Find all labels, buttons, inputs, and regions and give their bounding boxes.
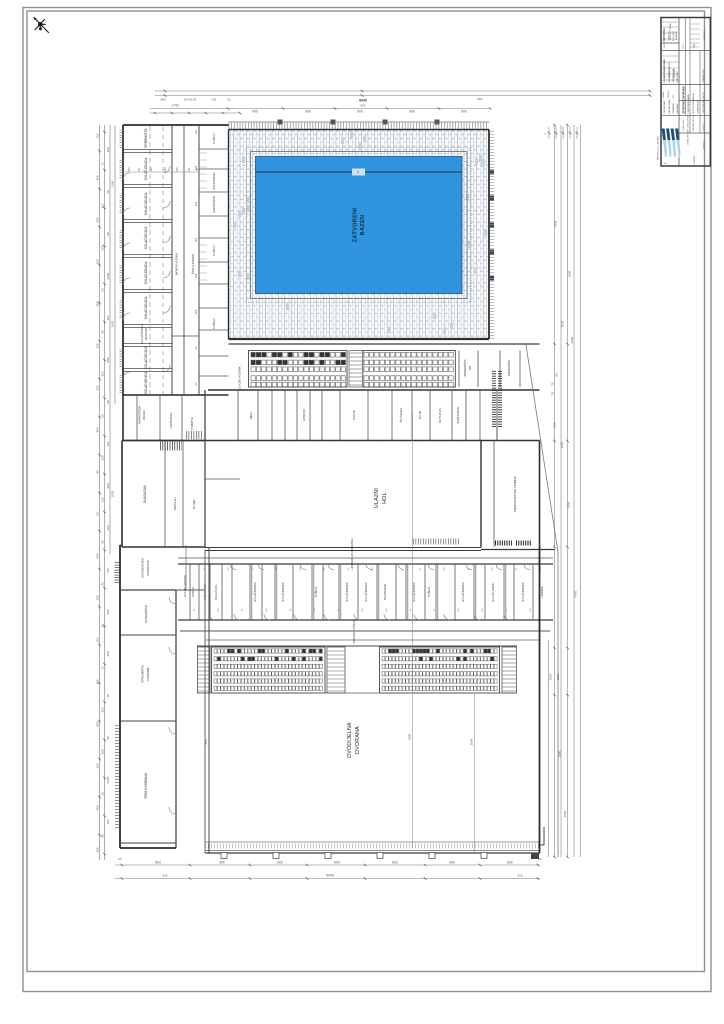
- svg-text:SANITARIJE: SANITARIJE: [456, 407, 460, 424]
- svg-text:305: 305: [194, 237, 198, 242]
- svg-text:SPREMIŠTE: SPREMIŠTE: [143, 127, 148, 147]
- svg-text:208: 208: [194, 273, 198, 278]
- svg-text:305: 305: [96, 343, 100, 348]
- svg-text:90: 90: [96, 470, 100, 474]
- svg-text:PRILOG 4: PRILOG 4: [704, 30, 706, 39]
- svg-text:95: 95: [101, 540, 105, 544]
- svg-text:UPRAVA: UPRAVA: [302, 409, 306, 421]
- svg-text:257: 257: [138, 167, 141, 172]
- svg-text:455: 455: [96, 679, 100, 684]
- svg-text:152: 152: [101, 371, 105, 376]
- svg-text:SUDAC: SUDAC: [191, 587, 195, 597]
- svg-text:2430: 2430: [106, 272, 110, 279]
- svg-text:70: 70: [551, 382, 555, 386]
- svg-text:INVALIDI: INVALIDI: [144, 328, 148, 340]
- svg-text:PROJEKTANT: PROJEKTANT: [663, 100, 666, 114]
- svg-text:305: 305: [96, 847, 100, 852]
- svg-text:ZOP 4457: ZOP 4457: [704, 141, 706, 149]
- svg-text:2908: 2908: [567, 501, 571, 508]
- svg-text:SPREMIŠTE: SPREMIŠTE: [140, 665, 145, 683]
- svg-text:2430: 2430: [106, 776, 110, 783]
- svg-text:BLAGAJNA: BLAGAJNA: [143, 485, 147, 503]
- svg-text:I ZATVORENI BAZEN: I ZATVORENI BAZEN: [687, 93, 690, 113]
- svg-text:TRAVANJ 2007.: TRAVANJ 2007.: [702, 68, 705, 82]
- svg-text:3030: 3030: [549, 673, 553, 680]
- svg-text:03 063 93: 03 063 93: [184, 98, 197, 102]
- svg-text:157: 157: [106, 567, 110, 572]
- svg-text:495: 495: [468, 365, 472, 370]
- svg-text:600: 600: [106, 483, 110, 488]
- svg-text:BAZEN: BAZEN: [142, 410, 146, 419]
- svg-text:152: 152: [101, 707, 105, 712]
- svg-text:305: 305: [96, 595, 100, 600]
- svg-text:3200: 3200: [568, 270, 572, 277]
- svg-text:73: 73: [101, 162, 105, 166]
- svg-text:ARHITEKTONSKI PROJEKT: ARHITEKTONSKI PROJEKT: [663, 57, 666, 82]
- svg-text:1206: 1206: [560, 441, 564, 448]
- svg-text:SVLAČIONICA: SVLAČIONICA: [143, 226, 148, 250]
- svg-text:SVLAČIONICA: SVLAČIONICA: [143, 371, 148, 395]
- svg-text:20: 20: [101, 792, 105, 796]
- svg-text:LIST: LIST: [673, 95, 675, 98]
- svg-text:600: 600: [106, 609, 110, 614]
- svg-text:208: 208: [194, 201, 198, 206]
- svg-text:1743: 1743: [171, 104, 178, 108]
- svg-text:3035: 3035: [111, 490, 115, 497]
- svg-text:tel 01/4855: tel 01/4855: [693, 156, 696, 164]
- svg-text:600: 600: [507, 861, 513, 865]
- svg-text:DVODIJELNA: DVODIJELNA: [347, 722, 353, 758]
- svg-text:90: 90: [555, 373, 559, 377]
- svg-text:150: 150: [96, 763, 100, 768]
- svg-text:455: 455: [96, 301, 100, 306]
- svg-text:8430: 8430: [359, 99, 367, 103]
- svg-text:257: 257: [188, 167, 191, 172]
- svg-text:150: 150: [101, 497, 105, 502]
- svg-text:20: 20: [101, 414, 105, 418]
- svg-text:MJERILO: MJERILO: [703, 123, 705, 131]
- svg-text:208: 208: [194, 309, 198, 314]
- svg-text:SVLAČIONICA: SVLAČIONICA: [363, 582, 368, 602]
- svg-text:SANITARIJE: SANITARIJE: [383, 584, 387, 601]
- svg-text:SVLAČIONICA: SVLAČIONICA: [143, 261, 148, 285]
- svg-text:ULAZNI HODNIK: ULAZNI HODNIK: [183, 575, 187, 597]
- svg-text:MARINA KOVAČ: MARINA KOVAČ: [672, 68, 675, 83]
- svg-text:PERO PERIĆ: PERO PERIĆ: [676, 70, 679, 82]
- svg-text:900: 900: [252, 110, 258, 114]
- svg-text:CAFFE: CAFFE: [352, 410, 356, 420]
- svg-text:90: 90: [101, 834, 105, 838]
- svg-text:900: 900: [357, 110, 363, 114]
- svg-text:73: 73: [101, 666, 105, 670]
- svg-text:20: 20: [96, 512, 100, 516]
- svg-text:SVLAČIONICA: SVLAČIONICA: [143, 296, 148, 320]
- svg-text:2430: 2430: [111, 320, 115, 327]
- svg-text:SVLAČIONICA: SVLAČIONICA: [252, 582, 257, 602]
- svg-text:455: 455: [96, 175, 100, 180]
- svg-text:TUŠEVI: TUŠEVI: [426, 587, 431, 598]
- svg-text:152: 152: [96, 637, 100, 642]
- svg-text:KLUB: KLUB: [418, 411, 422, 419]
- svg-text:GRAĐEVINA:: GRAĐEVINA:: [682, 119, 685, 131]
- svg-text:DVORANA: DVORANA: [355, 726, 361, 754]
- svg-text:300: 300: [106, 651, 110, 656]
- svg-text:455: 455: [96, 805, 100, 810]
- svg-text:985: 985: [160, 98, 165, 102]
- svg-text:SVLAČIONICA: SVLAČIONICA: [411, 582, 416, 602]
- svg-text:T 03: T 03: [694, 43, 696, 48]
- svg-text:2500: 2500: [563, 810, 567, 817]
- svg-text:ULAZNI HODNIK: ULAZNI HODNIK: [238, 366, 242, 389]
- svg-text:DATUM: DATUM: [702, 92, 705, 99]
- svg-text:905: 905: [106, 357, 110, 362]
- svg-text:208: 208: [194, 165, 198, 170]
- svg-text:VANJSKI TUŠEVI: VANJSKI TUŠEVI: [351, 620, 356, 643]
- svg-text:600: 600: [219, 861, 225, 865]
- svg-text:2430: 2430: [570, 336, 574, 343]
- svg-text:305: 305: [101, 455, 105, 460]
- svg-text:152: 152: [96, 133, 100, 138]
- svg-text:3230: 3230: [556, 673, 560, 680]
- svg-text:605: 605: [553, 422, 557, 427]
- svg-text:300: 300: [164, 167, 167, 172]
- svg-text:900: 900: [477, 97, 482, 101]
- svg-text:TUŠEVI: TUŠEVI: [211, 133, 216, 144]
- svg-text:SVLAČIONICA: SVLAČIONICA: [520, 582, 525, 602]
- svg-text:OPĆINA GRAD: OPĆINA GRAD: [663, 27, 666, 40]
- svg-text:092: 092: [212, 98, 217, 102]
- svg-text:900: 900: [305, 110, 311, 114]
- svg-text:455: 455: [96, 427, 100, 432]
- svg-text:TUŠEVI: TUŠEVI: [313, 587, 318, 598]
- svg-text:BROJ: BROJ: [683, 44, 685, 49]
- svg-text:60: 60: [106, 190, 110, 194]
- svg-text:SVLAČIONICA: SVLAČIONICA: [280, 582, 285, 602]
- svg-text:TUŠEVI: TUŠEVI: [211, 318, 216, 329]
- svg-text:2430: 2430: [554, 220, 558, 227]
- svg-text:300: 300: [128, 167, 131, 172]
- svg-text:60: 60: [106, 694, 110, 698]
- svg-text:TUŠEVI: TUŠEVI: [211, 245, 216, 256]
- svg-text:SVLAČIONICA: SVLAČIONICA: [460, 582, 465, 602]
- svg-text:900: 900: [409, 110, 415, 114]
- svg-text:2580: 2580: [558, 750, 562, 757]
- svg-text:ŠD SAVEZ: ŠD SAVEZ: [398, 408, 403, 423]
- svg-text:HODNIK UZ DVORANU: HODNIK UZ DVORANU: [350, 538, 354, 569]
- svg-text:20: 20: [101, 624, 105, 628]
- svg-text:GRAĐA I PROJEKTI ATELIJER P.B.: GRAĐA I PROJEKTI ATELIJER P.B.: [687, 114, 690, 145]
- svg-text:DVORANA: DVORANA: [146, 559, 150, 575]
- svg-text:3190: 3190: [111, 180, 115, 187]
- svg-text:NACRTAO: NACRTAO: [676, 103, 679, 113]
- svg-text:300: 300: [176, 167, 179, 172]
- svg-text:8430: 8430: [574, 590, 578, 597]
- svg-text:600: 600: [449, 861, 455, 865]
- svg-text:ULAZNI: ULAZNI: [374, 488, 380, 508]
- svg-text:ČISTI HODNIK: ČISTI HODNIK: [190, 254, 195, 274]
- svg-text:SANITARIJE: SANITARIJE: [212, 172, 216, 189]
- svg-text:GARDEROBA: GARDEROBA: [138, 406, 142, 424]
- svg-text:915: 915: [162, 874, 167, 878]
- svg-text:BL.SMJ.: BL.SMJ.: [192, 499, 196, 509]
- svg-text:ARH BIRO d.o.o. ZAGREB: ARH BIRO d.o.o. ZAGREB: [657, 135, 660, 160]
- svg-text:900: 900: [461, 110, 467, 114]
- svg-text:300: 300: [106, 147, 110, 152]
- svg-text:152: 152: [106, 441, 110, 446]
- svg-text:3035: 3035: [561, 320, 565, 327]
- svg-text:GRAĐEVNI DIO: GRAĐEVNI DIO: [697, 99, 700, 113]
- svg-text:2568: 2568: [470, 738, 474, 745]
- svg-text:150: 150: [194, 129, 198, 134]
- svg-text:90: 90: [106, 232, 110, 236]
- svg-text:SPORTSKA DVORANA: SPORTSKA DVORANA: [682, 86, 685, 113]
- svg-text:905: 905: [360, 104, 365, 108]
- svg-text:152: 152: [106, 315, 110, 320]
- svg-text:905: 905: [96, 721, 100, 726]
- svg-text:455: 455: [96, 553, 100, 558]
- svg-text:TLOCRT PRIZEMLJA: TLOCRT PRIZEMLJA: [692, 93, 695, 114]
- svg-text:GARDEROBA: GARDEROBA: [141, 557, 145, 578]
- svg-text:HOL: HOL: [382, 492, 388, 504]
- svg-text:905: 905: [96, 217, 100, 222]
- svg-text:MED.: MED.: [249, 411, 253, 419]
- svg-text:300: 300: [96, 385, 100, 390]
- svg-text:803: 803: [392, 861, 398, 865]
- svg-text:90: 90: [106, 736, 110, 740]
- svg-text:SVLAČ.INV.: SVLAČ.INV.: [213, 584, 218, 600]
- svg-text:SVLAČIONICA: SVLAČIONICA: [143, 346, 148, 370]
- svg-text:SANITARIJE: SANITARIJE: [212, 195, 216, 212]
- svg-text:OPREME: OPREME: [146, 667, 150, 680]
- svg-text:300: 300: [101, 749, 105, 754]
- svg-text:600: 600: [334, 861, 340, 865]
- svg-text:90: 90: [106, 400, 110, 404]
- svg-text:2500: 2500: [408, 733, 412, 740]
- svg-text:SPORTSKI CENTAR: SPORTSKI CENTAR: [669, 22, 672, 40]
- svg-text:152: 152: [101, 203, 105, 208]
- svg-text:ŽUPANIJA: ŽUPANIJA: [675, 31, 678, 40]
- svg-text:SVLAČIONICA: SVLAČIONICA: [143, 157, 148, 181]
- svg-text:300: 300: [150, 167, 153, 172]
- svg-text:90: 90: [101, 582, 105, 586]
- svg-text:150: 150: [96, 259, 100, 264]
- svg-text:MOKRI HODNIK: MOKRI HODNIK: [175, 253, 179, 275]
- svg-text:803: 803: [155, 861, 161, 865]
- svg-text:02: 02: [227, 98, 231, 102]
- svg-text:20: 20: [101, 288, 105, 292]
- svg-text:70: 70: [551, 392, 555, 396]
- svg-text:SPREMIŠTE: SPREMIŠTE: [462, 359, 467, 376]
- svg-text:SURADNIK: SURADNIK: [672, 102, 675, 113]
- svg-text:1:200 LIST BR. 3: 1:200 LIST BR. 3: [703, 97, 705, 113]
- svg-text:9040: 9040: [326, 874, 334, 878]
- svg-text:SVLAČIONICA: SVLAČIONICA: [344, 582, 349, 602]
- svg-text:SPREMIŠTE: SPREMIŠTE: [143, 605, 148, 623]
- svg-text:SVLAČ. PROF.: SVLAČ. PROF.: [490, 582, 495, 602]
- svg-text:90: 90: [101, 330, 105, 334]
- svg-text:ZATVORENI: ZATVORENI: [353, 208, 359, 243]
- svg-text:SADRŽAJ NACRTA:: SADRŽAJ NACRTA:: [692, 114, 695, 131]
- svg-text:BAZEN: BAZEN: [360, 215, 366, 236]
- svg-text:BR. OVLAST.: BR. OVLAST.: [672, 30, 675, 41]
- svg-text:MEĐUSPRATNE TRIBINE: MEĐUSPRATNE TRIBINE: [513, 476, 517, 511]
- svg-text:915: 915: [517, 874, 522, 878]
- svg-text:TRIM DVORANA: TRIM DVORANA: [144, 772, 148, 799]
- svg-text:SVLAČIONICA: SVLAČIONICA: [143, 192, 148, 216]
- svg-text:300: 300: [106, 525, 110, 530]
- svg-text:IVAN HORVAT d.i.a.: IVAN HORVAT d.i.a.: [668, 65, 671, 82]
- svg-text:152: 152: [106, 819, 110, 824]
- svg-text:KOTLOVN.: KOTLOVN.: [438, 407, 442, 422]
- svg-text:PROJEKTIRAO: PROJEKTIRAO: [668, 99, 671, 114]
- svg-text:600: 600: [277, 861, 283, 865]
- svg-text:HODNIK: HODNIK: [540, 586, 544, 597]
- svg-text:300: 300: [101, 245, 105, 250]
- svg-text:SPREMIŠTE: SPREMIŠTE: [506, 360, 511, 377]
